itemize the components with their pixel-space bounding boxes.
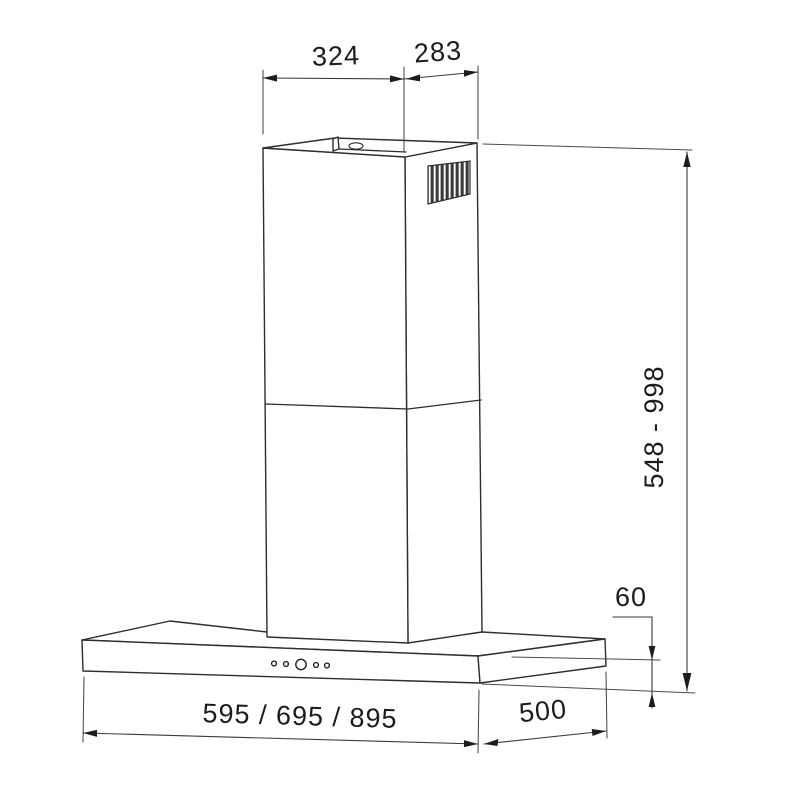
label-canopy-depth: 500	[518, 694, 569, 728]
extension-canopy-left	[83, 677, 84, 742]
chimney-side-face	[405, 143, 482, 643]
control-button-3	[314, 663, 319, 668]
label-chimney-side-depth: 283	[413, 35, 463, 68]
control-button-1	[272, 661, 277, 666]
arrow-324-left	[263, 75, 277, 82]
chimney-duct	[263, 137, 482, 643]
arrow-500-left	[484, 739, 498, 746]
control-button-2	[284, 662, 289, 667]
extension-canopy-rear-right	[606, 672, 607, 738]
arrow-595-left	[83, 730, 97, 737]
duct-knockout-hole	[349, 143, 363, 149]
label-chimney-front-width: 324	[311, 40, 360, 72]
arrow-324-right	[390, 75, 404, 82]
extension-height-top	[483, 144, 692, 150]
arrow-60-up	[649, 693, 656, 707]
cooker-hood-dimension-drawing: 324 283 548 - 998 60 595 / 695 / 895 500	[0, 0, 800, 800]
dim-line-chimney-front-width	[263, 78, 404, 79]
arrow-height-top	[683, 152, 690, 167]
label-canopy-height: 60	[615, 582, 647, 612]
chimney-front-face	[263, 148, 408, 643]
dim-line-canopy-depth	[484, 731, 606, 744]
arrow-283-left	[406, 74, 420, 81]
arrow-595-right	[464, 740, 478, 747]
label-canopy-widths: 595 / 695 / 895	[202, 698, 398, 734]
dim-leader-canopy-height	[613, 617, 652, 708]
control-button-4	[325, 663, 330, 668]
dimension-drawing-page: 324 283 548 - 998 60 595 / 695 / 895 500	[0, 0, 800, 800]
extension-canopy-bottom-right	[482, 684, 695, 693]
control-button-center	[296, 659, 306, 669]
label-chimney-height-range: 548 - 998	[639, 365, 669, 488]
arrow-500-right	[592, 729, 606, 736]
arrow-60-down	[649, 646, 656, 660]
arrow-height-bottom	[683, 673, 692, 691]
dim-line-canopy-width	[83, 733, 478, 744]
arrow-283-right	[464, 70, 478, 77]
duct-collar-tab	[333, 137, 339, 151]
